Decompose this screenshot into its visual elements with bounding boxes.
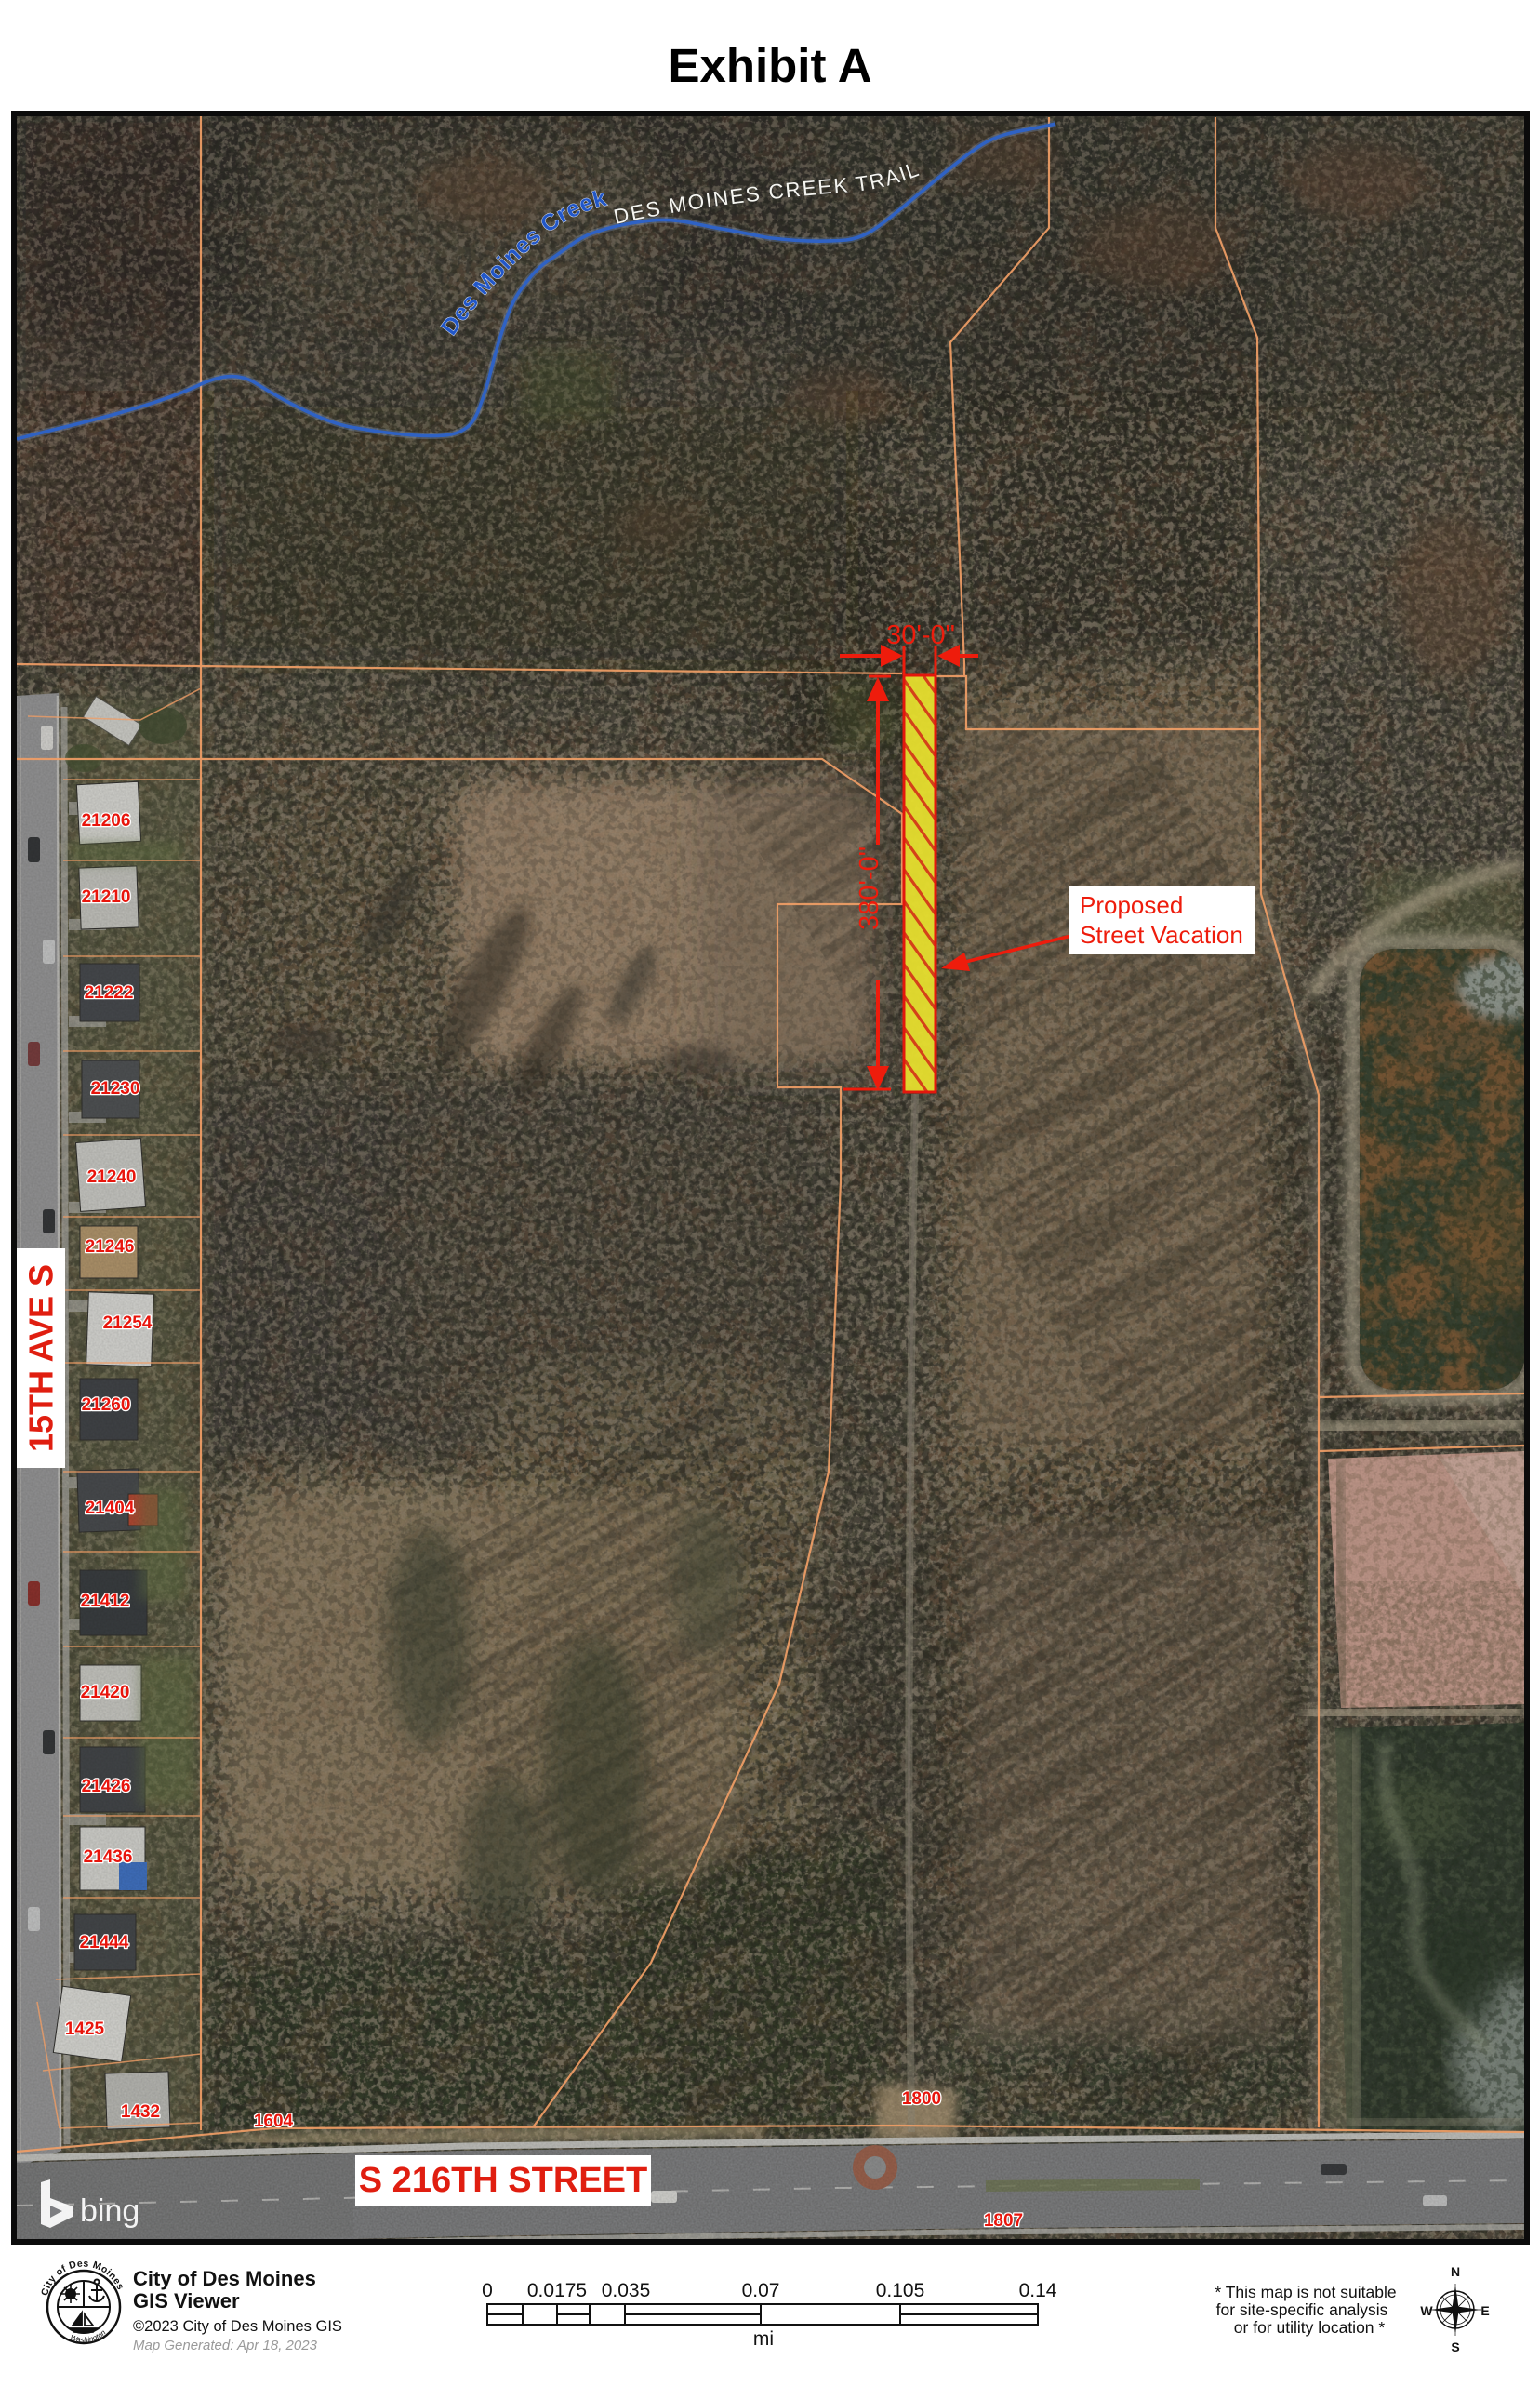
svg-text:21254: 21254 xyxy=(103,1313,153,1333)
svg-text:21230: 21230 xyxy=(91,1079,140,1099)
svg-text:Map Generated: Apr 18, 2023: Map Generated: Apr 18, 2023 xyxy=(133,2338,318,2353)
svg-text:21404: 21404 xyxy=(86,1499,135,1518)
svg-text:21260: 21260 xyxy=(82,1395,131,1415)
svg-text:0.14: 0.14 xyxy=(1019,2280,1057,2301)
svg-text:30'-0": 30'-0" xyxy=(886,620,955,650)
svg-text:21426: 21426 xyxy=(82,1777,131,1796)
svg-text:21240: 21240 xyxy=(87,1167,137,1187)
svg-text:1807: 1807 xyxy=(984,2211,1023,2231)
svg-text:21412: 21412 xyxy=(81,1592,130,1611)
svg-text:for site-specific analysis: for site-specific analysis xyxy=(1216,2300,1388,2319)
svg-text:21444: 21444 xyxy=(80,1933,129,1953)
svg-text:0.07: 0.07 xyxy=(742,2280,780,2301)
svg-text:15TH AVE S: 15TH AVE S xyxy=(22,1264,60,1452)
svg-text:1604: 1604 xyxy=(254,2112,294,2131)
svg-text:21210: 21210 xyxy=(82,887,131,907)
svg-text:* This map is not suitable: * This map is not suitable xyxy=(1215,2283,1396,2301)
svg-text:21246: 21246 xyxy=(86,1237,135,1257)
svg-text:City of Des Moines: City of Des Moines xyxy=(133,2267,316,2290)
svg-text:0.035: 0.035 xyxy=(602,2280,651,2301)
svg-text:21206: 21206 xyxy=(82,811,131,831)
svg-text:Proposed: Proposed xyxy=(1080,891,1183,919)
svg-text:S 216TH STREET: S 216TH STREET xyxy=(359,2161,647,2200)
svg-text:1425: 1425 xyxy=(65,2019,105,2039)
svg-text:21420: 21420 xyxy=(81,1683,130,1702)
svg-text:0.0175: 0.0175 xyxy=(527,2280,587,2301)
svg-text:21436: 21436 xyxy=(84,1847,133,1867)
svg-text:©2023 City of Des Moines GIS: ©2023 City of Des Moines GIS xyxy=(133,2318,342,2335)
svg-text:E: E xyxy=(1480,2303,1489,2318)
svg-text:0: 0 xyxy=(482,2280,493,2301)
svg-text:GIS Viewer: GIS Viewer xyxy=(133,2289,240,2313)
svg-text:Street Vacation: Street Vacation xyxy=(1080,921,1243,949)
svg-text:or for utility location *: or for utility location * xyxy=(1234,2318,1386,2337)
svg-text:380'-0": 380'-0" xyxy=(855,846,884,930)
svg-text:21222: 21222 xyxy=(85,983,134,1003)
svg-text:0.105: 0.105 xyxy=(876,2280,925,2301)
svg-text:mi: mi xyxy=(753,2328,774,2350)
svg-text:bing: bing xyxy=(80,2193,139,2229)
svg-text:1432: 1432 xyxy=(121,2102,160,2122)
svg-text:S: S xyxy=(1451,2339,1459,2354)
svg-text:N: N xyxy=(1451,2264,1460,2279)
svg-text:W: W xyxy=(1420,2303,1433,2318)
svg-text:1800: 1800 xyxy=(902,2089,941,2109)
